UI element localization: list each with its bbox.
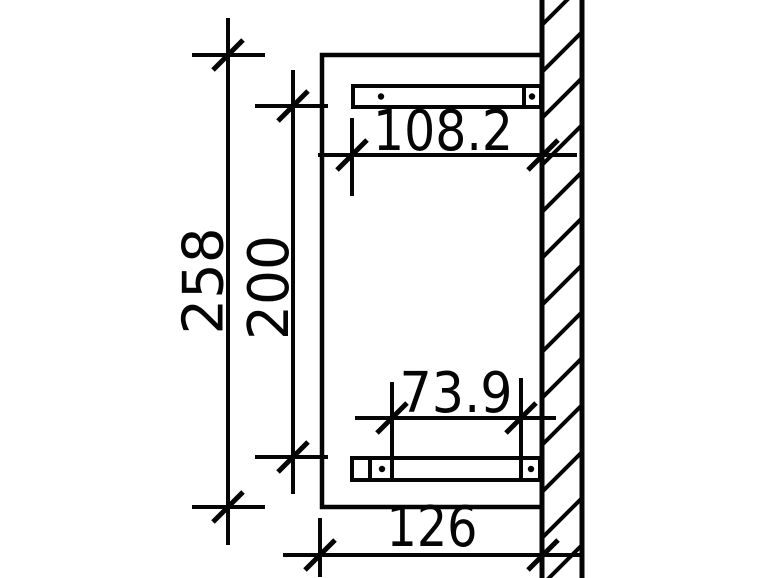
wall-hatch bbox=[542, 0, 582, 578]
wall-hatch-line bbox=[542, 265, 582, 305]
wall-hatch-line bbox=[542, 312, 582, 352]
wall-hatch-line bbox=[542, 32, 582, 72]
wall-hatch-line bbox=[542, 218, 582, 258]
screw-dot bbox=[529, 93, 535, 99]
dimension-inner-height: 200 bbox=[237, 70, 328, 494]
wall-hatch-line bbox=[542, 452, 582, 492]
dimension-label-overall-height: 258 bbox=[172, 228, 237, 335]
dimension-label-inner-height: 200 bbox=[237, 235, 302, 340]
dimension-label-lower-inner-width: 73.9 bbox=[400, 361, 513, 426]
dimension-label-upper-width: 108.2 bbox=[373, 99, 513, 164]
bottom-rail bbox=[352, 458, 540, 480]
screw-dot bbox=[379, 466, 385, 472]
wall-hatch-line bbox=[542, 498, 582, 538]
drawing-canvas: 258 200 108.2 73.9 bbox=[0, 0, 770, 578]
canopy-side-view-drawing: 258 200 108.2 73.9 bbox=[0, 0, 770, 578]
dimension-label-lower-width: 126 bbox=[387, 495, 478, 560]
dimension-lower-inner-width: 73.9 bbox=[355, 361, 556, 478]
wall-hatch-line bbox=[542, 125, 582, 165]
wall-hatch-line bbox=[542, 358, 582, 398]
dimension-upper-width: 108.2 bbox=[318, 99, 577, 196]
wall-hatch-line bbox=[542, 78, 582, 118]
wall-section bbox=[542, 0, 582, 578]
wall-hatch-line bbox=[542, 172, 582, 212]
screw-dot bbox=[528, 466, 534, 472]
wall-hatch-line bbox=[542, 405, 582, 445]
wall-hatch-line bbox=[542, 0, 582, 25]
